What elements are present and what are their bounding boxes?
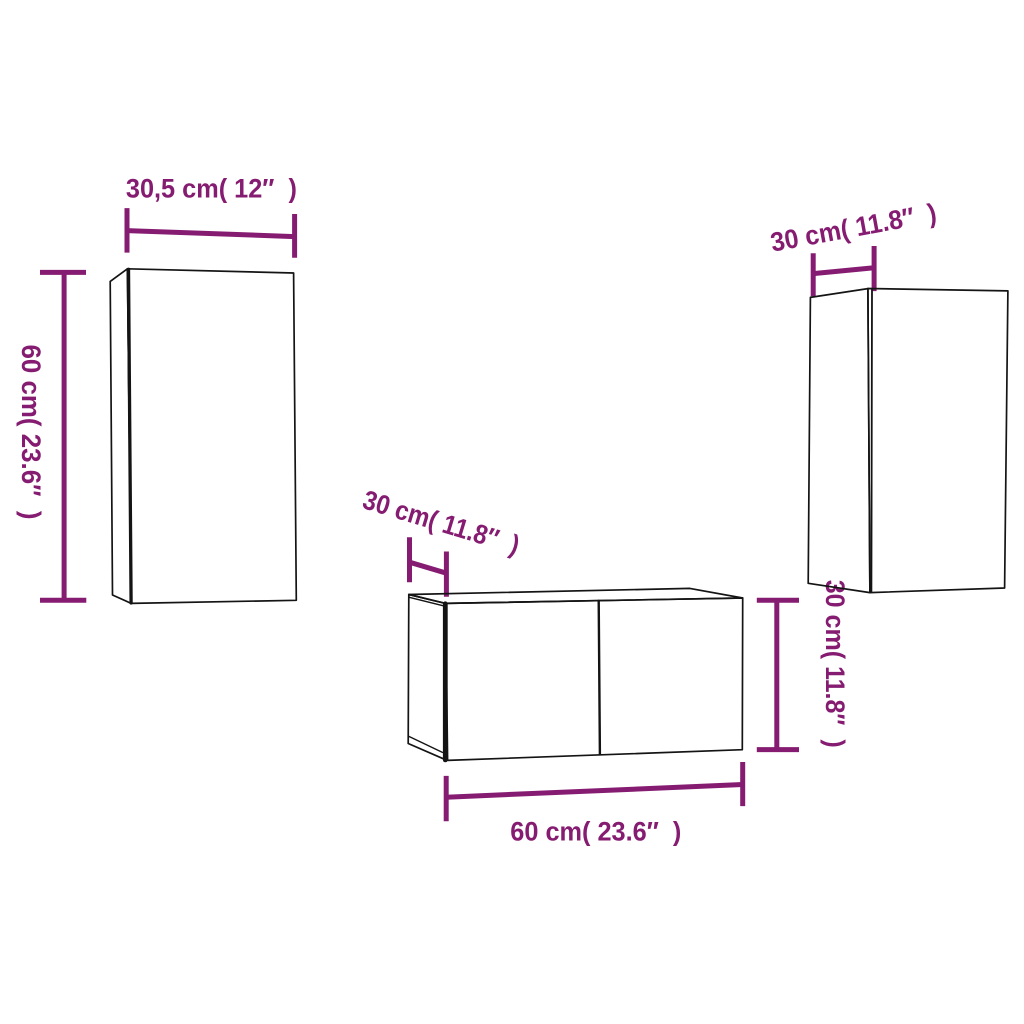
svg-text:30,5 cm( 12″ ): 30,5 cm( 12″ ) [126, 174, 297, 204]
svg-text:60 cm( 23.6″ ): 60 cm( 23.6″ ) [16, 345, 46, 520]
svg-text:60 cm( 23.6″ ): 60 cm( 23.6″ ) [510, 816, 681, 846]
svg-text:30 cm( 11.8″ ): 30 cm( 11.8″ ) [820, 580, 850, 748]
